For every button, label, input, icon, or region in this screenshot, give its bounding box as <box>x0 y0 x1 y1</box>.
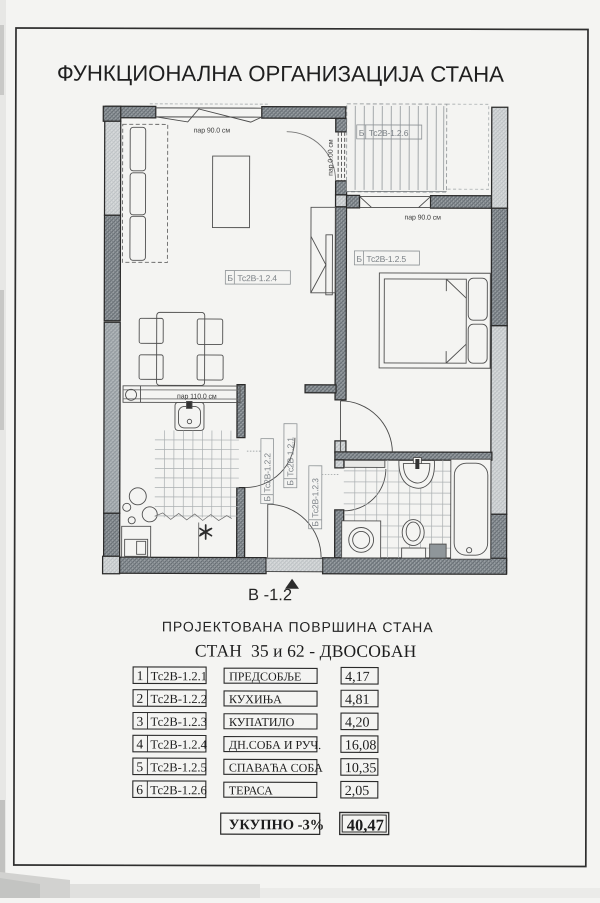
svg-text:КУХИЊА: КУХИЊА <box>229 692 282 706</box>
svg-text:2: 2 <box>137 691 144 706</box>
svg-text:4,17: 4,17 <box>345 670 370 685</box>
svg-text:4,20: 4,20 <box>345 716 370 731</box>
svg-text:1: 1 <box>137 668 144 683</box>
svg-text:Б: Б <box>227 273 233 283</box>
svg-text:Тс2В-1.2.6: Тс2В-1.2.6 <box>150 783 207 797</box>
svg-text:4,81: 4,81 <box>345 693 370 708</box>
svg-text:40,47: 40,47 <box>347 815 384 834</box>
svg-text:Тс2В-1.2.5: Тс2В-1.2.5 <box>150 760 207 774</box>
svg-text:5: 5 <box>136 759 143 774</box>
svg-text:ПРОЈЕКТОВАНА ПОВРШИНА СТАНА: ПРОЈЕКТОВАНА ПОВРШИНА СТАНА <box>162 618 434 635</box>
svg-text:Б: Б <box>359 128 365 138</box>
svg-text:Тс2В-1.2.3: Тс2В-1.2.3 <box>150 715 207 729</box>
svg-text:КУПАТИЛО: КУПАТИЛО <box>229 715 295 729</box>
svg-text:Тс2В-1.2.4: Тс2В-1.2.4 <box>237 273 277 283</box>
svg-text:Тс2В-1.2.2: Тс2В-1.2.2 <box>151 692 208 706</box>
svg-text:10,35: 10,35 <box>345 761 377 776</box>
svg-text:Тс2В-1.2.6: Тс2В-1.2.6 <box>369 128 409 138</box>
svg-text:СПАВАЋА СОБА: СПАВАЋА СОБА <box>229 761 323 775</box>
svg-text:пар 90.0 см: пар 90.0 см <box>404 215 441 222</box>
svg-text:ПРЕДСОБЉЕ: ПРЕДСОБЉЕ <box>229 669 301 683</box>
svg-text:2,05: 2,05 <box>345 784 370 799</box>
svg-text:16,08: 16,08 <box>345 738 377 753</box>
svg-text:Б: Б <box>262 496 272 502</box>
svg-text:СТАН 35 и 62 - ДВОСОБАН: СТАН 35 и 62 - ДВОСОБАН <box>195 640 417 661</box>
svg-text:B -1.2: B -1.2 <box>248 586 292 604</box>
svg-text:пар 0.00 см: пар 0.00 см <box>328 139 335 176</box>
svg-text:Тс2В-1.2.3: Тс2В-1.2.3 <box>310 478 320 518</box>
svg-text:ТЕРАСА: ТЕРАСА <box>229 783 273 797</box>
svg-text:Тс2В-1.2.1: Тс2В-1.2.1 <box>285 437 295 477</box>
svg-text:4: 4 <box>136 737 143 752</box>
svg-text:6: 6 <box>136 782 143 797</box>
svg-text:Тс2В-1.2.2: Тс2В-1.2.2 <box>262 453 272 493</box>
svg-text:ДН.СОБА И РУЧ.: ДН.СОБА И РУЧ. <box>229 738 321 752</box>
svg-text:Тс2В-1.2.1: Тс2В-1.2.1 <box>151 669 208 683</box>
svg-text:Б: Б <box>310 521 320 527</box>
svg-text:пар 90.0 см: пар 90.0 см <box>194 127 231 134</box>
svg-text:3: 3 <box>136 714 143 729</box>
svg-text:УКУПНО -3%: УКУПНО -3% <box>229 817 325 833</box>
svg-text:Тс2В-1.2.4: Тс2В-1.2.4 <box>150 738 207 752</box>
svg-text:Тс2В-1.2.5: Тс2В-1.2.5 <box>366 254 406 264</box>
svg-text:ФУНКЦИОНАЛНА ОРГАНИЗАЦИЈА СТАН: ФУНКЦИОНАЛНА ОРГАНИЗАЦИЈА СТАНА <box>57 61 504 87</box>
svg-text:Б: Б <box>285 480 295 486</box>
svg-text:Б: Б <box>356 254 362 264</box>
